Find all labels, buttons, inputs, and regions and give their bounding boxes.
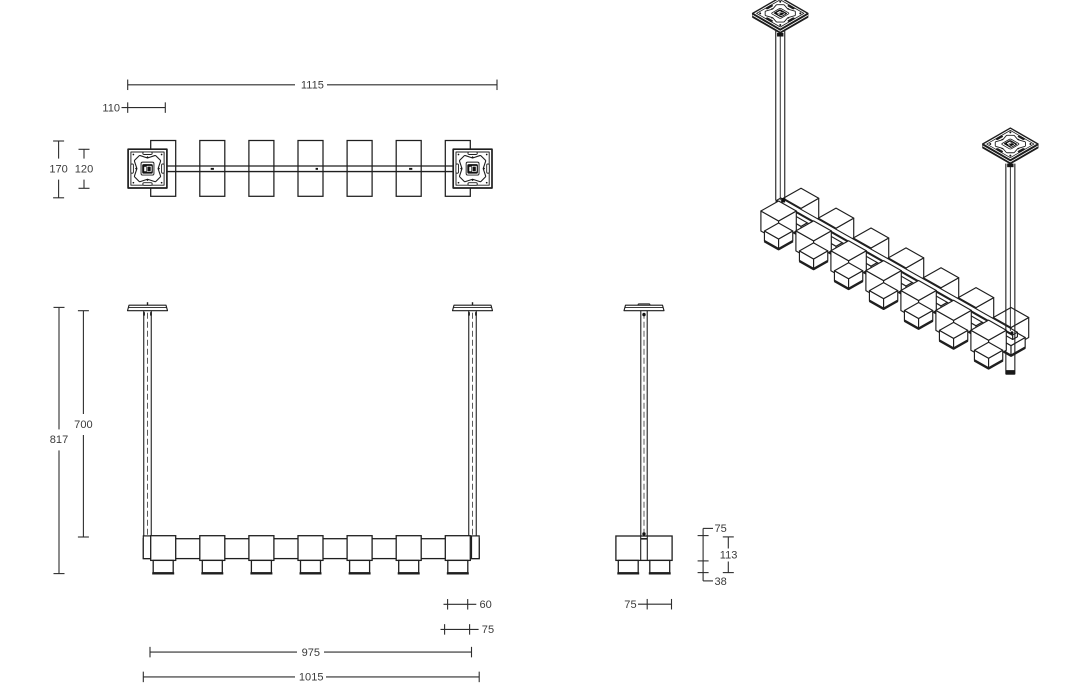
svg-text:110: 110 [102,102,120,114]
svg-text:1115: 1115 [301,80,324,92]
svg-text:1015: 1015 [299,672,324,684]
svg-text:817: 817 [50,434,68,446]
svg-text:120: 120 [75,163,93,175]
svg-text:75: 75 [715,523,727,535]
svg-text:60: 60 [480,599,492,611]
svg-text:975: 975 [302,647,320,659]
svg-text:700: 700 [74,419,92,431]
svg-text:113: 113 [720,549,738,561]
svg-text:75: 75 [482,624,494,636]
svg-text:38: 38 [715,576,727,588]
svg-text:170: 170 [49,163,67,175]
svg-text:75: 75 [624,599,636,611]
